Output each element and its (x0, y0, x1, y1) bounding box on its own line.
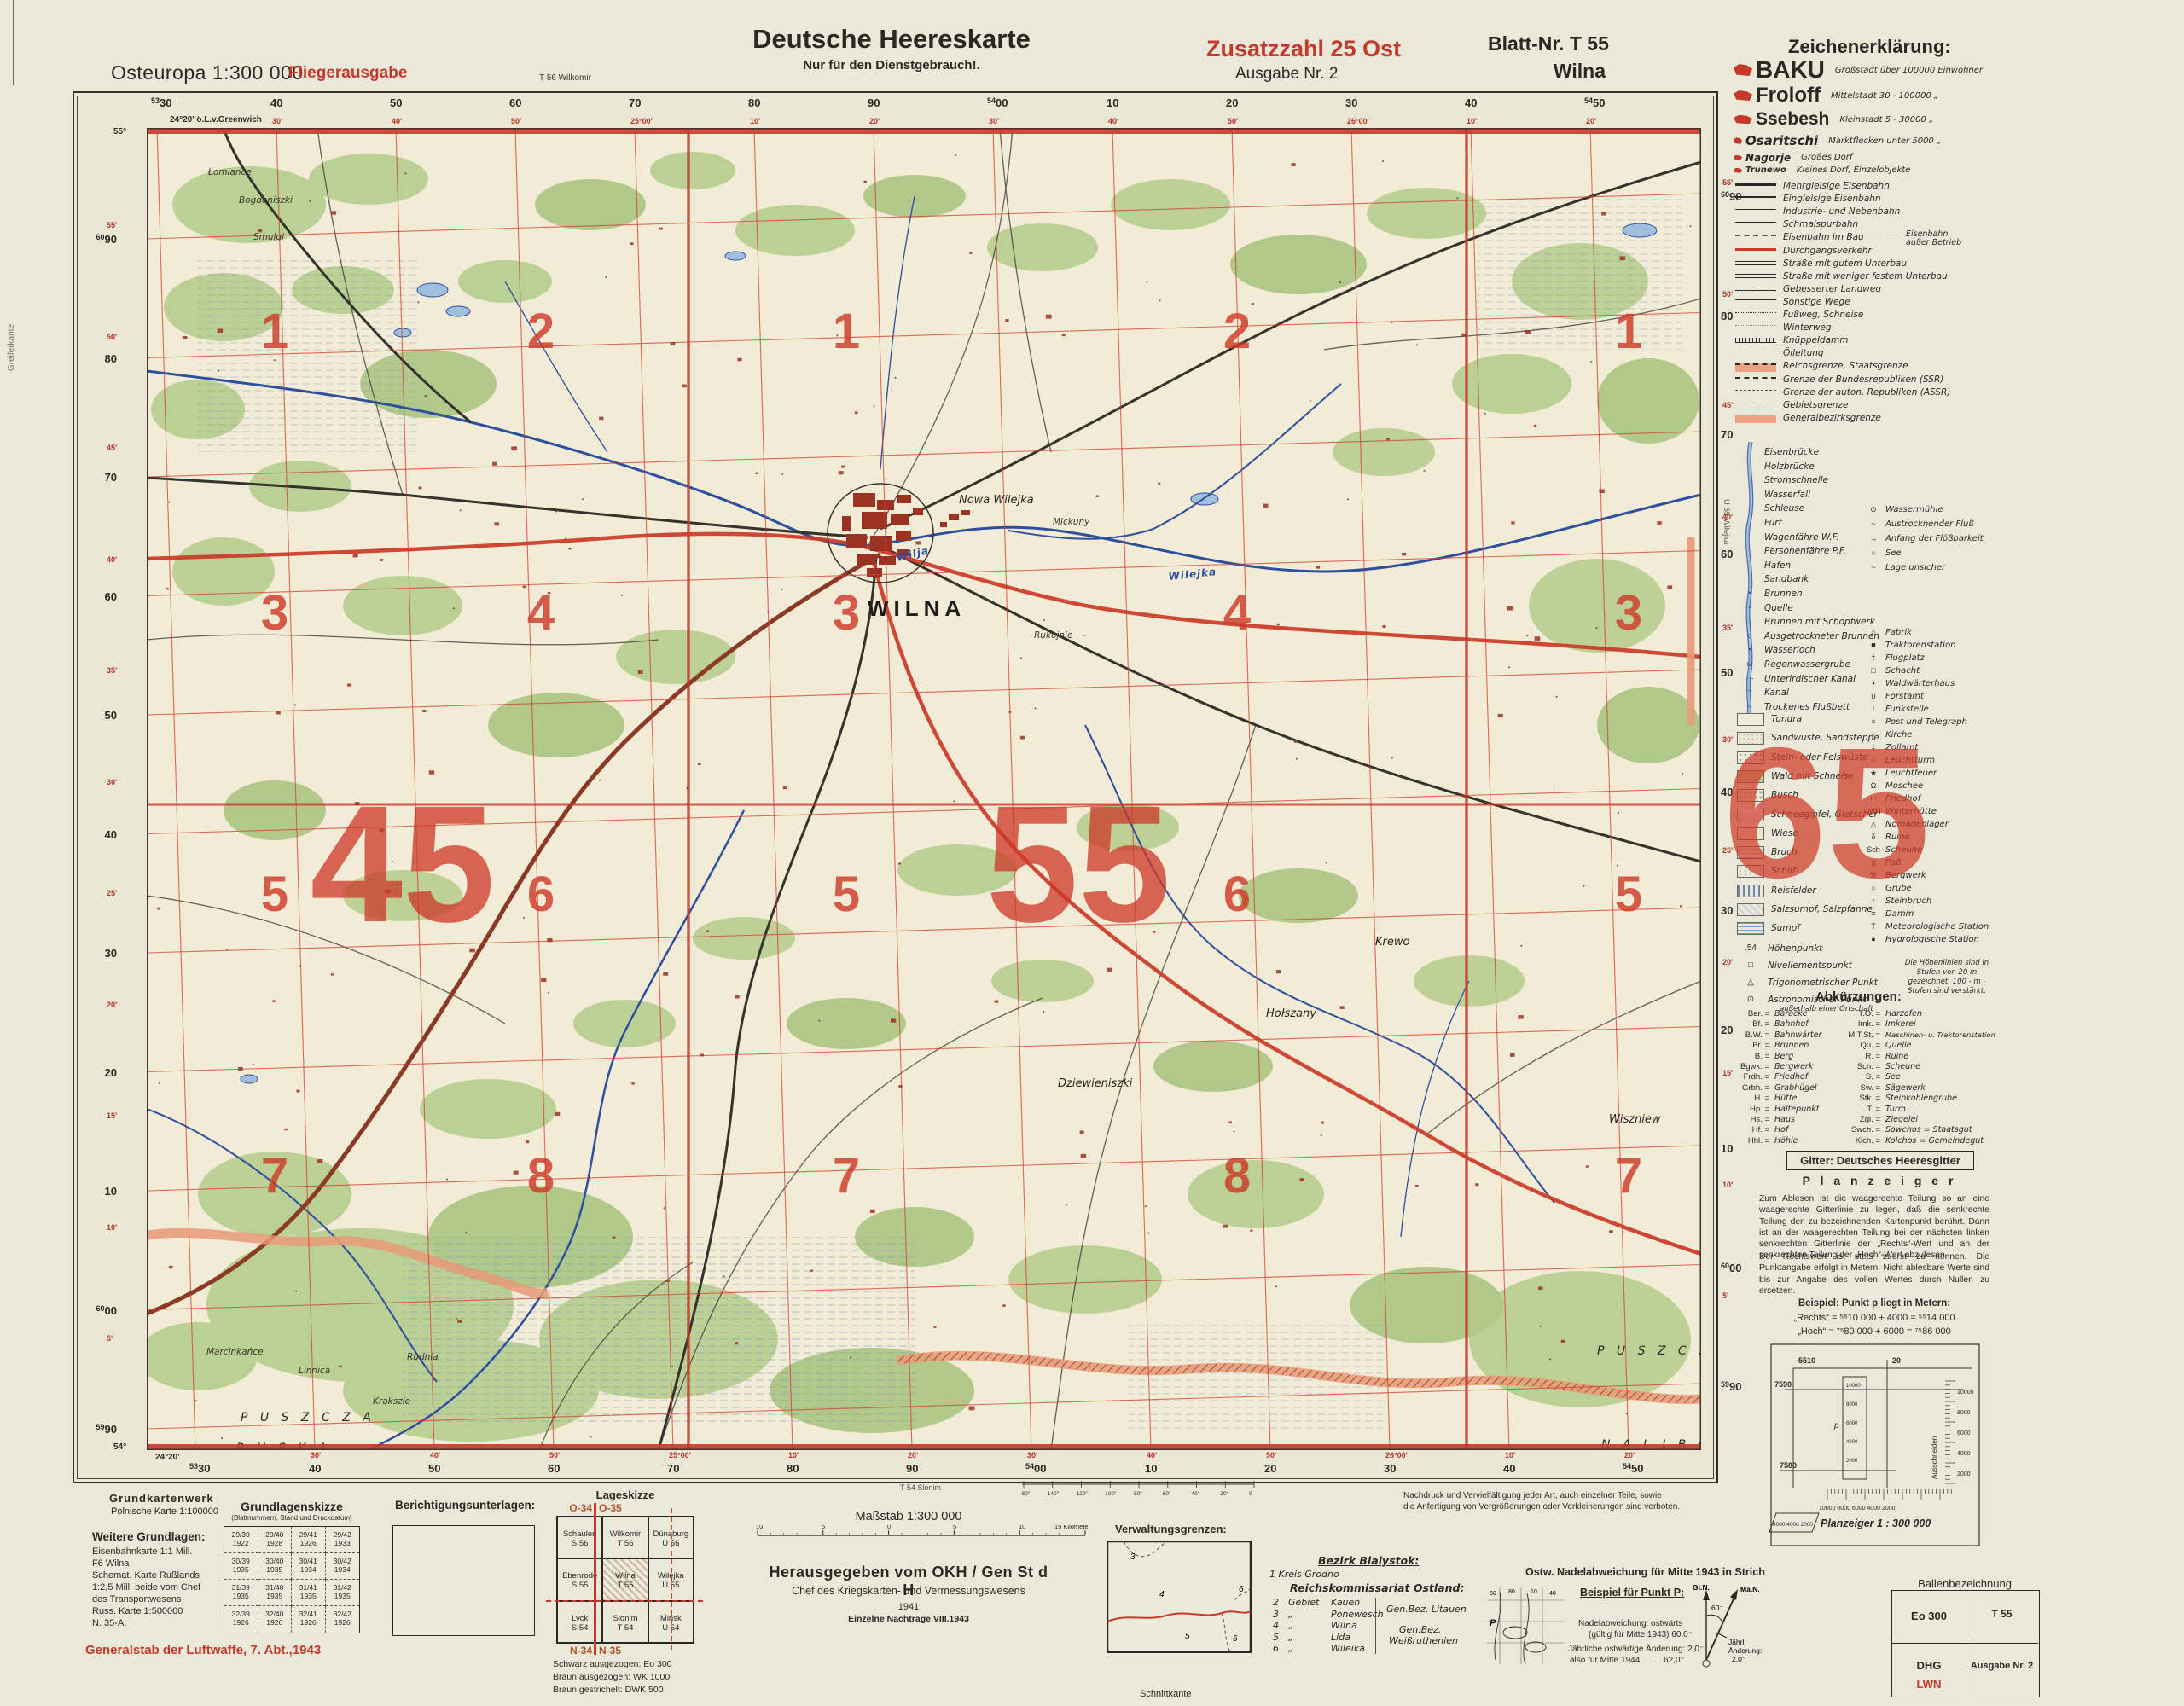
hamlet-dot (299, 966, 301, 967)
hamlet-dot (460, 509, 462, 511)
verw-name: Wileika (1331, 1643, 1365, 1654)
weitere-lines: Eisenbahnkarte 1:1 Mill.F6 WilnaSchemat.… (92, 1546, 200, 1629)
place-label-forest: P U S Z C Z A (1597, 1344, 1701, 1358)
settlement-mark (659, 228, 663, 230)
legend-right-label: Scheune (1885, 845, 1922, 855)
svg-text:Gi.N.: Gi.N. (1693, 1583, 1710, 1592)
town-glyph-icon (1734, 168, 1742, 173)
lat-minute-label: 35' (1722, 624, 1733, 632)
hamlet-dot (590, 1436, 591, 1438)
settlement-mark (1415, 1185, 1419, 1187)
grid-col-label: 30 (1384, 1462, 1396, 1475)
legend-water-label: Brunnen mit Schöpfwerk (1764, 617, 1875, 627)
lon-minute-label: 25°00' (669, 1451, 691, 1459)
map-element: 10000 (1846, 1384, 1861, 1389)
hamlet-dot (1321, 1134, 1322, 1136)
hamlet-dot (686, 787, 688, 789)
hamlet-dot (895, 377, 897, 379)
legend-place-desc: Mittelstadt 30 - 100000 „ (1831, 91, 1938, 101)
map-element: 140″ (1048, 1491, 1060, 1497)
legend-right-label: Wassermühle (1885, 505, 1943, 514)
settlement-mark (169, 1266, 173, 1268)
hamlet-dot (1302, 741, 1304, 743)
hamlet-dot (1554, 785, 1555, 786)
map-element: 0 (1249, 1491, 1252, 1497)
settlement-mark (1046, 315, 1052, 319)
settlement-mark (568, 548, 571, 549)
settlement-mark (296, 1090, 299, 1093)
legend-symbol-road2 (1735, 274, 1776, 278)
legend-place-row: SsebeshKleinstadt 5 - 30000 „ (1734, 109, 1933, 130)
settlement-mark (1599, 490, 1604, 493)
grundkartenwerk-title: Grundkartenwerk (109, 1492, 214, 1505)
legend-symbol-road3 (1735, 287, 1776, 291)
settlement-mark (1538, 1286, 1542, 1290)
lat-minute-label: 15' (1722, 1069, 1733, 1077)
abbr-key: Grbh. = (1732, 1083, 1769, 1093)
legend-symbol-railout (1864, 235, 1900, 235)
abbr-key: Hp. = (1732, 1105, 1769, 1114)
abbr-value: Baracke (1774, 1009, 1808, 1018)
okh-line2: Chef des Kriegskarten- und Vermessungswe… (768, 1585, 1049, 1597)
hamlet-dot (605, 276, 607, 278)
settlement-mark (317, 1159, 322, 1163)
legend-symbol-border1 (1735, 363, 1776, 372)
planzeiger-rechts: „Rechts“ = ⁵⁵10 000 + 4000 = ⁵⁵14 000 (1759, 1313, 1989, 1323)
lageskizze-note: Schwarz ausgezogen: Eo 300 (553, 1658, 672, 1671)
legend-symbol-icon: ★ (1865, 769, 1882, 778)
gsk-cell: 32/401926 (258, 1606, 293, 1633)
grid-col-label: 5400 (987, 96, 1008, 109)
legend-symbol-icon: × (1865, 717, 1882, 726)
hamlet-dot (1556, 696, 1558, 698)
weitere-title: Weitere Grundlagen: (92, 1530, 206, 1543)
legend-symbol-icon: ⚒ (1865, 871, 1882, 880)
abbr-key: R. = (1833, 1052, 1880, 1061)
lon-minute-label: 20' (1624, 1451, 1635, 1459)
hamlet-dot (1382, 160, 1384, 162)
legend-symbol-icon: ⌂ (1865, 628, 1882, 636)
terrain-swatch-icon (1737, 903, 1764, 916)
gsk-cell: 29/401928 (258, 1527, 293, 1553)
legend-terrain-label: Sumpf (1771, 923, 1800, 933)
lsk-name: Wilna (603, 1571, 647, 1581)
map-element: 4000 (1957, 1451, 1971, 1457)
abbr-key: T. = (1833, 1105, 1880, 1114)
hamlet-dot (1339, 281, 1341, 283)
settlement-mark (1339, 1006, 1344, 1009)
lat-minute-label: 5' (107, 1334, 113, 1343)
legend-symbol-icon: ‡ (1865, 743, 1882, 751)
lat-minute-label: 45' (107, 444, 117, 452)
grid-row-label: 6000 (1721, 1262, 1741, 1274)
settlement-mark (698, 763, 701, 765)
abbr-value: Scheune (1885, 1062, 1920, 1071)
settlement-mark (969, 252, 972, 254)
hamlet-dot (294, 705, 296, 706)
hamlet-dot (1556, 207, 1558, 209)
water-symbol-icon: ω (1739, 659, 1761, 668)
legend-water-label: Brunnen (1764, 589, 1803, 599)
planzeiger-heading: P l a n z e i g e r (1786, 1174, 1972, 1187)
abk-heading: Abkürzungen: (1815, 989, 1902, 1004)
planzeiger-beispiel: Beispiel: Punkt p liegt in Metern: (1759, 1298, 1989, 1309)
hamlet-dot (453, 607, 455, 609)
gsk-cell: 29/421933 (326, 1527, 360, 1553)
ballen-t55: T 55 (1966, 1608, 2038, 1620)
legend-terrain-label: Salzsumpf, Salzpfanne (1771, 904, 1873, 914)
legend-water-label: Furt (1764, 518, 1782, 528)
hamlet-dot (1146, 281, 1147, 283)
settlement-mark (864, 181, 867, 183)
legend-place-row: BAKUGroßstadt über 100000 Einwohner (1734, 56, 1983, 84)
terrain-swatch-icon (1737, 922, 1764, 935)
legend-place-row: TrunewoKleines Dorf, Einzelobjekte (1734, 163, 1910, 178)
water-symbol-icon: ⁝ (1739, 617, 1761, 626)
grid-row-label: 80 (81, 352, 117, 365)
gsk-sheet: 32/40 (258, 1610, 292, 1618)
hamlet-dot (1682, 773, 1683, 775)
svg-text:Änderung:: Änderung: (1728, 1646, 1762, 1655)
settlement-mark (425, 395, 427, 397)
generalstab-note: Generalstab der Luftwaffe, 7. Abt.,1943 (85, 1643, 321, 1657)
settlement-mark (1402, 553, 1406, 556)
legend-place-name: Froloff (1756, 84, 1821, 107)
settlement-mark (1277, 624, 1280, 625)
legend-line-label: Ölleitung (1783, 348, 1824, 358)
nadel-beispiel: Beispiel für Punkt P: (1580, 1587, 1684, 1599)
legend-symbol-icon: )( (1865, 858, 1882, 867)
settlement-mark (1008, 711, 1011, 713)
settlement-mark (915, 541, 921, 544)
zusatzzahl: Zusatzzahl 25 Ost (1206, 36, 1401, 62)
lon-minute-label: 26°00' (1347, 117, 1369, 125)
settlement-mark (1507, 606, 1513, 611)
abbr-key: Swch. = (1833, 1125, 1880, 1134)
series-title: Osteuropa 1:300 000 (111, 61, 304, 84)
gsk-sheet: 31/40 (258, 1583, 292, 1592)
settlement-mark (514, 1171, 519, 1175)
lageskizze-grid: SchaulenS 56WilkomirT 56DünaburgU 56Eben… (556, 1516, 694, 1644)
verw-num: 3 (1273, 1609, 1279, 1620)
map-element: 100″ (1105, 1491, 1117, 1497)
lat-minute-label: 40' (107, 555, 117, 564)
svg-text:50: 50 (1490, 1591, 1496, 1597)
point-symbol-icon: △ (1740, 978, 1761, 987)
settlement-mark (276, 711, 281, 714)
legend-right-label: Friedhof (1885, 794, 1920, 804)
grid-row-label: 70 (81, 471, 117, 484)
grid-col-label: 10 (1107, 96, 1118, 109)
legend-place-desc: Großstadt über 100000 Einwohner (1835, 66, 1983, 75)
abbr-value: Bahnwärter (1774, 1030, 1821, 1040)
lsk-code: T 56 (603, 1539, 647, 1548)
settlement-mark (511, 446, 517, 450)
verw-ditto: „ (1288, 1609, 1293, 1620)
settlement-mark (1525, 330, 1531, 334)
grid-row-label: 5990 (1721, 1380, 1741, 1393)
legend-water-label: Ausgetrockneter Brunnen (1764, 631, 1879, 641)
settlement-mark (1386, 438, 1390, 440)
hamlet-dot (253, 1064, 254, 1065)
map-element: 4000 (1846, 1440, 1858, 1445)
settlement-mark (457, 1320, 462, 1322)
lat-minute-label: 15' (107, 1111, 117, 1120)
legend-terrain-label: Wiese (1771, 828, 1798, 838)
settlement-mark (331, 211, 336, 214)
settlement-mark (1107, 968, 1112, 972)
greenwich-label: 24°20' ö.L.v.Greenwich (170, 115, 262, 125)
verwaltung-sketch: 3 4 6 5 6 (1107, 1541, 1252, 1653)
weitere-line: 1:2,5 Mill. beide vom Chef (92, 1581, 200, 1593)
legend-terrain-label: Tundra (1771, 714, 1802, 724)
legend-place-row: OsaritschiMarktflecken unter 5000 „ (1734, 133, 1941, 148)
place-label-town: Nowa Wilejka (959, 494, 1034, 507)
lageskizze-note: Braun gestrichelt: DWK 500 (553, 1684, 672, 1697)
gsk-sheet: 29/42 (326, 1530, 360, 1539)
place-label-vill: Rudnia (407, 1352, 439, 1362)
legend-line-label: Eisenbahn im Bau (1783, 232, 1864, 242)
legend-symbol-icon: ○ (1865, 548, 1882, 557)
grid-cell-number: 6 (527, 867, 555, 922)
lon-minute-label: 25°00' (630, 117, 653, 125)
water-symbol-icon: ~ (1739, 603, 1761, 612)
terrain-swatch-icon (1737, 885, 1764, 897)
page-title: Deutsche Heereskarte (751, 24, 1032, 55)
svg-text:4: 4 (1159, 1590, 1165, 1599)
grid-row-label: 80 (1721, 310, 1733, 322)
map-element: 120″ (1077, 1491, 1089, 1497)
town-glyph-icon (1734, 137, 1742, 144)
hamlet-dot (195, 1400, 197, 1401)
gsk-sheet: 29/39 (224, 1530, 258, 1539)
water-symbol-icon: ≈ (1739, 702, 1761, 711)
svg-text:7580: 7580 (1780, 1461, 1797, 1470)
gsk-sheet: 30/40 (258, 1557, 292, 1565)
hamlet-dot (168, 502, 170, 503)
lon-minute-label: 50' (1228, 117, 1238, 125)
settlement-mark (870, 1210, 875, 1213)
settlement-mark (1005, 319, 1008, 322)
legend-right-label: Waldwärterhaus (1885, 679, 1955, 688)
lon-minute-label: 20' (869, 117, 880, 125)
legend-water-label: Schleuse (1764, 503, 1804, 514)
legend-water-label: Personenfähre P.F. (1764, 546, 1846, 556)
map-element: 8000 (1846, 1402, 1858, 1407)
abbr-key: Bf. = (1732, 1019, 1769, 1029)
grid-cell-number: 1 (1615, 304, 1642, 359)
gsk-cell: 30/411934 (292, 1553, 326, 1580)
verwaltung-title: Verwaltungsgrenzen: (1115, 1523, 1227, 1535)
lat-minute-label: 55' (1722, 178, 1733, 187)
gsk-year: 1935 (258, 1592, 292, 1600)
svg-text:Ma.N.: Ma.N. (1740, 1585, 1760, 1593)
abbr-key: Hs. = (1732, 1115, 1769, 1124)
grid-zone-number: 55 (986, 771, 1171, 957)
settlement-mark (995, 1001, 999, 1003)
map-image: 455512345678123456781357WILNANowa Wilejk… (147, 128, 1701, 1450)
berichtigung-box (392, 1525, 535, 1636)
place-label-vill: Linnica (299, 1366, 330, 1376)
legend-water-label: Eisenbrücke (1764, 447, 1819, 457)
verw-num: 5 (1273, 1632, 1279, 1643)
legend-line-label: Durchgangsverkehr (1783, 246, 1872, 256)
grid-col-label: 5330 (189, 1462, 210, 1475)
abbr-value: Steinkohlengrube (1885, 1094, 1957, 1103)
ballen-table: Eo 300 T 55 DHG LWN Ausgabe Nr. 2 (1891, 1590, 2040, 1697)
hamlet-dot (1618, 812, 1619, 814)
scale-bar: 105051015 Kilometer (754, 1525, 1089, 1544)
weitere-line: Russ. Karte 1:500000 (92, 1605, 200, 1617)
legend-symbol-border4 (1735, 403, 1776, 403)
gsk-cell: 31/391935 (224, 1580, 258, 1606)
abbr-key: B. = (1732, 1052, 1769, 1061)
hamlet-dot (767, 611, 769, 612)
gsk-year: 1926 (258, 1618, 292, 1627)
legend-symbol-rail2 (1735, 183, 1776, 186)
gsk-year: 1926 (326, 1618, 360, 1627)
settlement-mark (682, 385, 687, 388)
hamlet-dot (1626, 1413, 1628, 1414)
legend-right-label: Funkstelle (1885, 705, 1929, 714)
svg-text:80: 80 (1508, 1589, 1515, 1595)
legend-right-label: Winterhütte (1885, 807, 1937, 816)
lageskizze-title: Lageskizze (556, 1488, 694, 1501)
weitere-line: des Transportwesens (92, 1593, 200, 1605)
verw-name: Wilna (1331, 1620, 1357, 1631)
nadel-title: Ostw. Nadelabweichung für Mitte 1943 in … (1525, 1566, 1765, 1578)
okh-line4: Einzelne Nachträge VIII.1943 (768, 1614, 1049, 1624)
terrain-swatch-icon (1737, 827, 1764, 840)
settlement-mark (1223, 1225, 1228, 1228)
legend-symbol-icon: † (1865, 653, 1882, 662)
map-element: 160″ (1022, 1491, 1031, 1497)
svg-text:3: 3 (1130, 1552, 1136, 1562)
gsk-cell: 31/411935 (292, 1580, 326, 1606)
hamlet-dot (1596, 627, 1598, 629)
planzeiger-para2: Der Rechtswert ist stets zuerst zu nenne… (1759, 1251, 1989, 1297)
grid-col-label: 40 (1465, 96, 1477, 109)
terrain-swatch-icon (1737, 751, 1764, 764)
hamlet-dot (671, 1366, 673, 1367)
legend-water-label: Kanal (1764, 688, 1789, 698)
okh-line3: 1941 (768, 1602, 1049, 1612)
legend-place-desc: Kleines Dorf, Einzelobjekte (1797, 165, 1911, 175)
grid-row-label: 10 (1721, 1142, 1733, 1155)
settlement-mark (1601, 212, 1606, 215)
legend-right-label: Moschee (1885, 781, 1923, 791)
svg-text:10: 10 (1531, 1589, 1537, 1595)
legend-point-label: Nivellementspunkt (1768, 960, 1852, 971)
hamlet-dot (1456, 197, 1458, 199)
legend-symbol-redroad (1735, 248, 1776, 251)
settlement-mark (706, 930, 709, 931)
abbr-key: Zgl. = (1833, 1115, 1880, 1124)
lon-minute-label: 10' (788, 1451, 799, 1459)
grid-row-label: 70 (1721, 428, 1733, 441)
lon-minute-label: 50' (511, 117, 521, 125)
lat-minute-label: 30' (1722, 735, 1733, 744)
abbr-value: Maschinen- u. Traktorenstation (1885, 1030, 1995, 1039)
settlement-mark (1510, 1053, 1515, 1057)
grid-cell-number: 2 (527, 304, 555, 359)
grid-row-label: 60 (81, 590, 117, 603)
hamlet-dot (1391, 322, 1393, 323)
place-label-vill: Mickuny (1053, 517, 1090, 527)
lon-minute-label: 30' (1027, 1451, 1037, 1459)
hamlet-dot (1145, 1205, 1147, 1207)
town-glyph-icon (1734, 90, 1752, 101)
grid-col-label: 70 (629, 96, 641, 109)
hamlet-dot (1066, 1204, 1067, 1205)
legend-symbol-icon: → (1865, 534, 1882, 543)
water-symbol-icon: • (1739, 589, 1761, 597)
gsk-cell: 32/391926 (224, 1606, 258, 1633)
greiferkante-label: Greiferkante (7, 324, 16, 371)
settlement-mark (1561, 1340, 1565, 1343)
blatt-name: Wilna (1527, 60, 1606, 83)
lageskizze-brownline (671, 1508, 672, 1650)
grundlagenskizze-title: Grundlagenskizze (224, 1500, 360, 1513)
settlement-mark (1081, 1154, 1086, 1158)
compass-diagram: Gi.N. Ma.N. 60⁻ Jährl. Änderung: 2,0⁻ (1691, 1583, 1768, 1672)
lat-minute-label: 20' (1722, 958, 1733, 966)
abbr-value: Haus (1774, 1115, 1795, 1124)
settlement-mark (613, 1236, 616, 1239)
terrain-swatch-icon (1737, 770, 1764, 783)
hamlet-dot (1689, 225, 1691, 227)
settlement-mark (492, 462, 497, 466)
hamlet-dot (1310, 400, 1311, 402)
massstab-title: Maßstab 1:300 000 (798, 1510, 1019, 1523)
gsk-cell: 29/391922 (224, 1527, 258, 1553)
legend-place-name: Ssebesh (1756, 109, 1829, 130)
berichtigung-title: Berichtigungsunterlagen: (395, 1499, 535, 1512)
rk-heading: Reichskommissariat Ostland: (1290, 1581, 1464, 1594)
lon-minute-label: 50' (1266, 1451, 1276, 1459)
legend-right-label: See (1885, 548, 1902, 558)
gsk-sheet: 31/42 (326, 1583, 360, 1592)
map-element: 80″ (1134, 1491, 1142, 1497)
svg-text:5: 5 (1185, 1632, 1190, 1641)
gsk-sheet: 32/42 (326, 1610, 360, 1618)
hamlet-dot (309, 200, 311, 202)
map-element: 20″ (1220, 1491, 1228, 1497)
grid-row-label: 60 (1721, 548, 1733, 560)
legend-line-label: Grenze der auton. Republiken (ASSR) (1783, 387, 1950, 397)
legend-place-desc: Marktflecken unter 5000 „ (1828, 136, 1941, 146)
settlement-mark (1680, 905, 1682, 907)
hamlet-dot (1391, 757, 1393, 758)
legend-right-label: Meteorologische Station (1885, 922, 1989, 931)
grid-cell-number: 7 (833, 1148, 860, 1204)
svg-text:Planzeiger 1 : 300 000: Planzeiger 1 : 300 000 (1821, 1517, 1931, 1529)
svg-text:Ausschneiden: Ausschneiden (1931, 1436, 1938, 1479)
abbr-value: Grabhügel (1774, 1083, 1817, 1093)
settlement-mark (238, 1067, 243, 1071)
settlement-mark (1080, 1131, 1084, 1134)
legend-line-label: Gebesserter Landweg (1783, 284, 1881, 294)
legend-right-label: Fabrik (1885, 628, 1912, 637)
lageskizze-note: Braun ausgezogen: WK 1000 (553, 1671, 672, 1684)
settlement-mark (157, 908, 160, 910)
settlement-mark (272, 1000, 276, 1002)
page-subtitle: Nur für den Dienstgebrauch!. (751, 58, 1032, 73)
gsk-sheet: 30/42 (326, 1557, 360, 1565)
lsk-code: T 55 (603, 1581, 647, 1590)
legend-right-label: Leuchtturm (1885, 756, 1935, 765)
map-element: 6000 (1846, 1421, 1858, 1426)
